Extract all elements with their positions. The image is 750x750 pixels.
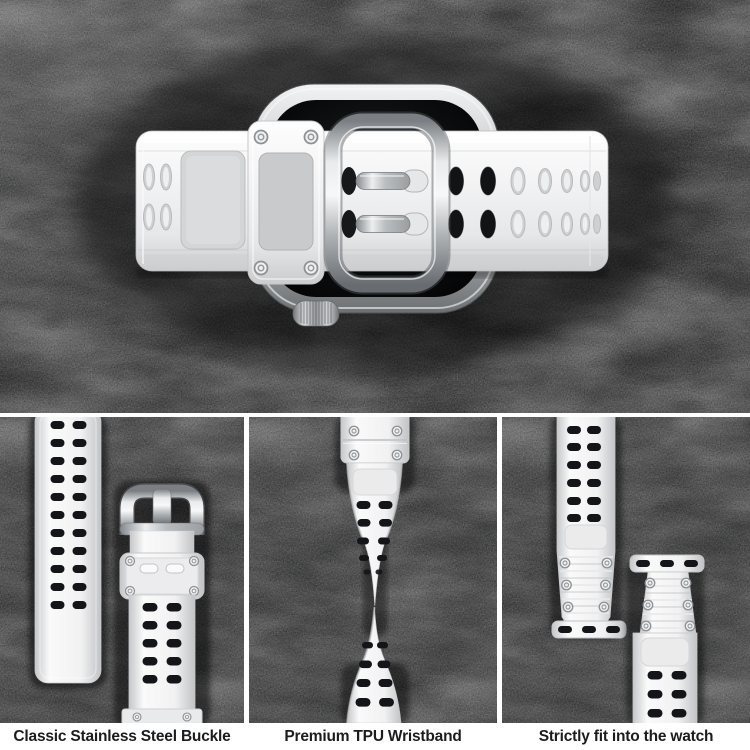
screw-icon <box>641 621 651 631</box>
screw-icon <box>681 578 691 588</box>
panel-buckle-detail <box>0 417 244 723</box>
screw-icon <box>601 580 611 590</box>
band-connector <box>341 417 409 463</box>
wristband <box>136 131 608 278</box>
caption-fit: Strictly fit into the watch <box>502 723 750 750</box>
caption-wristband: Premium TPU Wristband <box>249 723 497 750</box>
screw-icon <box>255 262 268 275</box>
screw-icon <box>126 557 135 566</box>
screw-icon <box>683 600 693 610</box>
buckle-prong <box>356 170 428 192</box>
band-end-upper <box>550 417 626 639</box>
screw-icon <box>190 587 199 596</box>
detail-panels <box>0 417 750 723</box>
screw-icon <box>305 262 318 275</box>
watch-lug-connector <box>552 621 626 638</box>
buckle-strap <box>114 481 210 723</box>
steel-buckle-small <box>120 489 204 535</box>
screw-icon <box>392 426 402 436</box>
watch-top-view-photo <box>0 0 750 413</box>
screw-icon <box>560 558 570 568</box>
digital-crown <box>293 301 339 326</box>
watch-lug-connector <box>630 555 704 572</box>
screw-icon <box>255 131 268 144</box>
screw-icon <box>190 557 199 566</box>
adjustment-strap <box>29 417 107 689</box>
detail-section: Classic Stainless Steel Buckle Premium T… <box>0 413 750 750</box>
caption-buckle: Classic Stainless Steel Buckle <box>0 723 244 750</box>
screw-icon <box>349 450 359 460</box>
screw-icon <box>133 713 141 721</box>
lug-connector <box>122 709 202 723</box>
screw-icon <box>643 600 653 610</box>
buckle-prong <box>356 213 428 235</box>
band-keeper <box>248 121 324 284</box>
screw-icon <box>602 558 612 568</box>
screw-icon <box>392 450 402 460</box>
band-keeper-small <box>120 553 204 599</box>
screw-icon <box>685 621 695 631</box>
caption-bar: Classic Stainless Steel Buckle Premium T… <box>0 723 750 750</box>
product-image: Classic Stainless Steel Buckle Premium T… <box>0 0 750 750</box>
screw-icon <box>349 426 359 436</box>
screw-icon <box>183 713 191 721</box>
screw-icon <box>562 580 572 590</box>
screw-icon <box>305 131 318 144</box>
screw-icon <box>599 602 609 612</box>
panel-wristband-detail <box>249 417 497 723</box>
screw-icon <box>563 602 573 612</box>
panel-fit-detail <box>502 417 750 723</box>
screw-icon <box>645 578 655 588</box>
band-end-lower <box>626 555 704 723</box>
screw-icon <box>126 587 135 596</box>
